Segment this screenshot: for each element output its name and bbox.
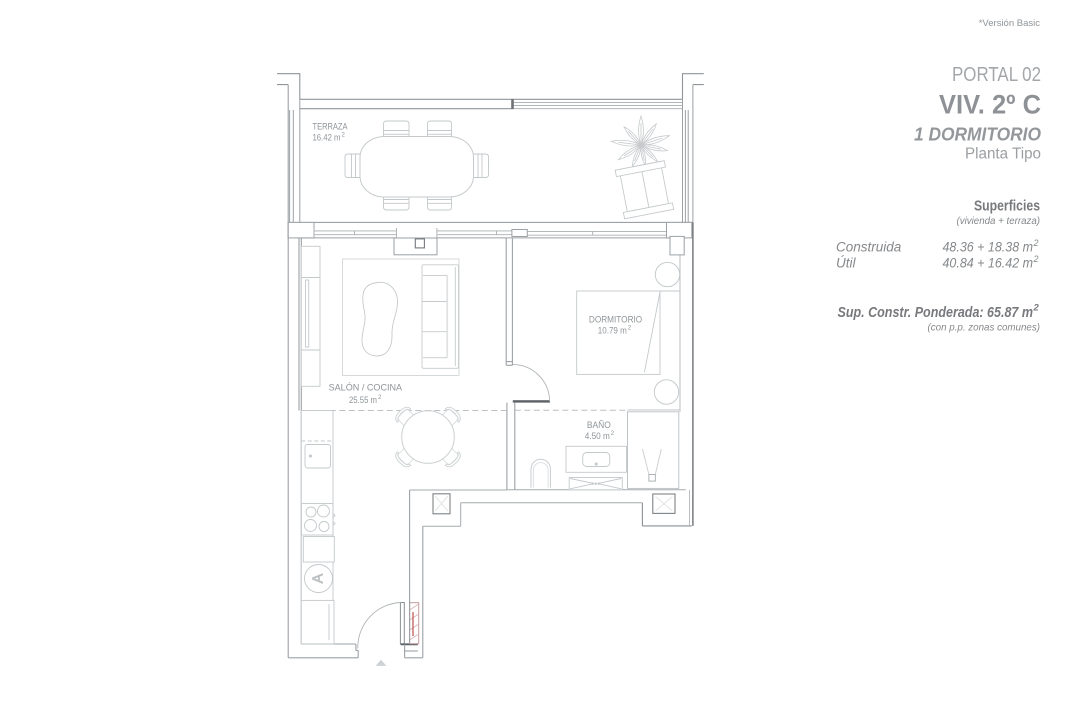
svg-text:SALÓN / COCINA: SALÓN / COCINA [329, 383, 403, 393]
svg-text:VIV. 2º C: VIV. 2º C [939, 90, 1041, 120]
svg-text:2: 2 [1033, 303, 1040, 314]
svg-text:Construida: Construida [836, 240, 902, 255]
svg-text:4.50 m: 4.50 m [585, 431, 610, 441]
svg-text:2: 2 [1033, 254, 1039, 264]
svg-text:16.42 m: 16.42 m [313, 133, 341, 143]
svg-text:1 DORMITORIO: 1 DORMITORIO [914, 124, 1042, 145]
svg-text:DORMITORIO: DORMITORIO [589, 315, 642, 325]
svg-text:Superficies: Superficies [974, 199, 1040, 215]
svg-text:10.79 m: 10.79 m [598, 326, 627, 336]
svg-text:2: 2 [1033, 238, 1039, 248]
svg-text:Útil: Útil [836, 256, 856, 271]
svg-text:(con p.p. zonas comunes): (con p.p. zonas comunes) [928, 323, 1041, 334]
svg-text:TERRAZA: TERRAZA [313, 122, 348, 132]
svg-text:Planta Tipo: Planta Tipo [965, 146, 1041, 163]
svg-text:*Versión Basic: *Versión Basic [979, 18, 1041, 29]
svg-text:A: A [311, 573, 327, 583]
svg-text:PORTAL 02: PORTAL 02 [952, 64, 1041, 86]
svg-text:48.36 + 18.38 m: 48.36 + 18.38 m [943, 240, 1034, 255]
svg-text:Sup. Constr. Ponderada: 65.87: Sup. Constr. Ponderada: 65.87 m [838, 305, 1034, 321]
svg-text:25.55 m: 25.55 m [349, 395, 377, 405]
svg-text:(vivienda + terraza): (vivienda + terraza) [957, 216, 1041, 227]
svg-text:BAÑO: BAÑO [587, 420, 611, 430]
svg-text:40.84 + 16.42 m: 40.84 + 16.42 m [943, 256, 1034, 271]
